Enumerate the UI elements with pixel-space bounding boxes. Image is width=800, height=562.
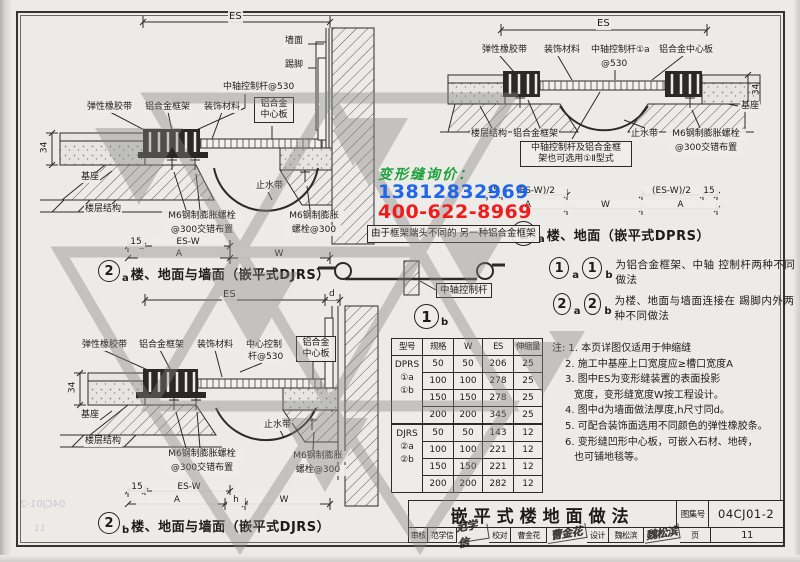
note-line: 也可铺地毯等。 [552, 450, 792, 466]
model-name: DPRS [392, 359, 422, 372]
spec-cell: 12 [514, 476, 543, 493]
drawing-1b-linework [318, 261, 505, 295]
note-text: 宽度，变形缝宽度W按工程设计。 [574, 390, 724, 401]
note-line: 宽度，变形缝宽度W按工程设计。 [552, 388, 792, 404]
proof-label: 校对 [489, 528, 511, 543]
atlas-no-value: 04CJ01-2 [709, 501, 784, 528]
circled-number: 2 [584, 293, 602, 315]
legend-subscript: a [574, 306, 581, 317]
spec-cell: 143 [483, 424, 514, 442]
legend-text-2: 为楼、地面与墙面连接在 踢脚内外两种不同做法 [615, 294, 800, 324]
spec-cell: 12 [514, 424, 543, 442]
note-text: 也可铺地毯等。 [574, 452, 644, 463]
model-group-dprs: DPRS ①a ①b [392, 356, 423, 425]
page-number: 11 [711, 528, 784, 543]
designer-signature: 魏松滨 [642, 523, 680, 543]
legend-row-2: 2a 2b 为楼、地面与墙面连接在 踢脚内外两种不同做法 [553, 293, 800, 324]
note-line: 3. 图中ES为变形缝装置的表面投影 [552, 372, 792, 388]
note-text: 5. 可配合装饰面选用不同颜色的弹性橡胶条。 [565, 421, 768, 432]
spec-cell: 221 [483, 442, 514, 459]
designer-name: 魏松滨 [609, 528, 644, 543]
note-line: 5. 可配合装饰面选用不同颜色的弹性橡胶条。 [552, 419, 792, 435]
proofer-name: 曹金花 [511, 528, 547, 543]
spec-cell: 200 [454, 407, 483, 425]
legend-row-1: 1a 1b 为铝合金框架、中轴 控制杆两种不同做法 [549, 257, 800, 288]
spec-cell: 12 [514, 442, 543, 459]
drawing-2b-linework [60, 294, 378, 510]
legend-subscript: a [572, 270, 579, 281]
spec-cell: 206 [483, 356, 514, 373]
design-label: 设计 [587, 528, 608, 543]
model-variant: ②a [392, 441, 422, 454]
drawing-2a-linework [40, 16, 374, 264]
circled-number: 2 [553, 293, 571, 315]
column-header-es: ES [483, 339, 514, 356]
table-row: DPRS ①a ①b 50 50 206 25 [392, 356, 543, 373]
atlas-no-label: 图集号 [677, 501, 709, 528]
spec-cell: 50 [423, 424, 454, 442]
column-header-spec: 规格 [423, 339, 454, 356]
legend-text-line1: 为楼、地面与墙面连接在 [615, 295, 736, 307]
audit-label: 审核 [409, 528, 428, 543]
spec-cell: 100 [423, 373, 454, 390]
spec-cell: 221 [483, 459, 514, 476]
legend-text-line1: 为铝合金框架、中轴 [615, 259, 714, 271]
spec-cell: 100 [454, 442, 483, 459]
spec-cell: 25 [514, 356, 543, 373]
spec-cell: 150 [423, 390, 454, 407]
sheet-title: 嵌平式楼地面做法 [409, 501, 677, 528]
column-header-w: W [454, 339, 483, 356]
spec-cell: 150 [454, 459, 483, 476]
model-variant: ①a [392, 372, 422, 385]
spec-cell: 50 [454, 424, 483, 442]
spec-cell: 25 [514, 373, 543, 390]
spec-cell: 100 [454, 373, 483, 390]
spec-cell: 282 [483, 476, 514, 493]
spec-cell: 100 [423, 442, 454, 459]
legend-subscript: b [605, 270, 612, 281]
title-block: 嵌平式楼地面做法 图集号 04CJ01-2 审核 范学信 范学信 校对 曹金花 … [408, 500, 784, 543]
spec-cell: 25 [514, 390, 543, 407]
spec-cell: 50 [454, 356, 483, 373]
note-line: 2. 施工中基座上口宽度应≥槽口宽度A [552, 357, 792, 373]
notes-block: 注:1. 本页详图仅适用于伸缩缝 2. 施工中基座上口宽度应≥槽口宽度A 3. … [552, 341, 792, 466]
table-row: DJRS ②a ②b 50 50 143 12 [392, 424, 543, 442]
spec-cell: 278 [483, 373, 514, 390]
note-line: 4. 图中d为墙面做法厚度,h尺寸同d。 [552, 403, 792, 419]
note-text: 1. 本页详图仅适用于伸缩缝 [568, 343, 691, 354]
drawing-1a-linework [440, 24, 760, 215]
note-line: 6. 变形缝凹形中心板，可嵌入石材、地砖， [552, 435, 792, 451]
notes-tag: 注: [552, 343, 565, 354]
spec-cell: 12 [514, 459, 543, 476]
proofer-signature: 曹金花 [546, 523, 588, 544]
spec-cell: 50 [423, 356, 454, 373]
spec-cell: 200 [423, 407, 454, 425]
column-header-expansion: 伸缩量 [514, 339, 543, 356]
spec-cell: 278 [483, 390, 514, 407]
spec-cell: 150 [423, 459, 454, 476]
model-variant: ①b [392, 385, 422, 398]
column-header-model: 型号 [392, 339, 423, 356]
spec-table: 型号 规格 W ES 伸缩量 DPRS ①a ①b 50 50 206 25 1… [391, 338, 543, 493]
model-group-djrs: DJRS ②a ②b [392, 424, 423, 493]
model-name: DJRS [392, 428, 422, 441]
note-text: 3. 图中ES为变形缝装置的表面投影 [565, 374, 720, 385]
legend-text-1: 为铝合金框架、中轴 控制杆两种不同做法 [615, 258, 800, 288]
spec-cell: 200 [454, 476, 483, 493]
spec-cell: 150 [454, 390, 483, 407]
spec-cell: 200 [423, 476, 454, 493]
note-text: 2. 施工中基座上口宽度应≥槽口宽度A [565, 359, 733, 370]
spec-cell: 345 [483, 407, 514, 425]
note-text: 6. 变形缝凹形中心板，可嵌入石材、地砖， [565, 437, 758, 448]
model-variant: ②b [392, 454, 422, 467]
scanned-drawing-page: 04CJ01-2 11 [0, 0, 800, 562]
legend-subscript: b [604, 306, 611, 317]
auditor-name: 范学信 [428, 528, 456, 543]
circled-number: 1 [582, 257, 602, 279]
auditor-signature: 范学信 [455, 524, 489, 544]
circled-number: 1 [549, 257, 569, 279]
note-text: 4. 图中d为墙面做法厚度,h尺寸同d。 [565, 405, 730, 416]
page-label: 页 [680, 528, 711, 543]
note-line: 注:1. 本页详图仅适用于伸缩缝 [552, 341, 792, 357]
spec-cell: 25 [514, 407, 543, 425]
